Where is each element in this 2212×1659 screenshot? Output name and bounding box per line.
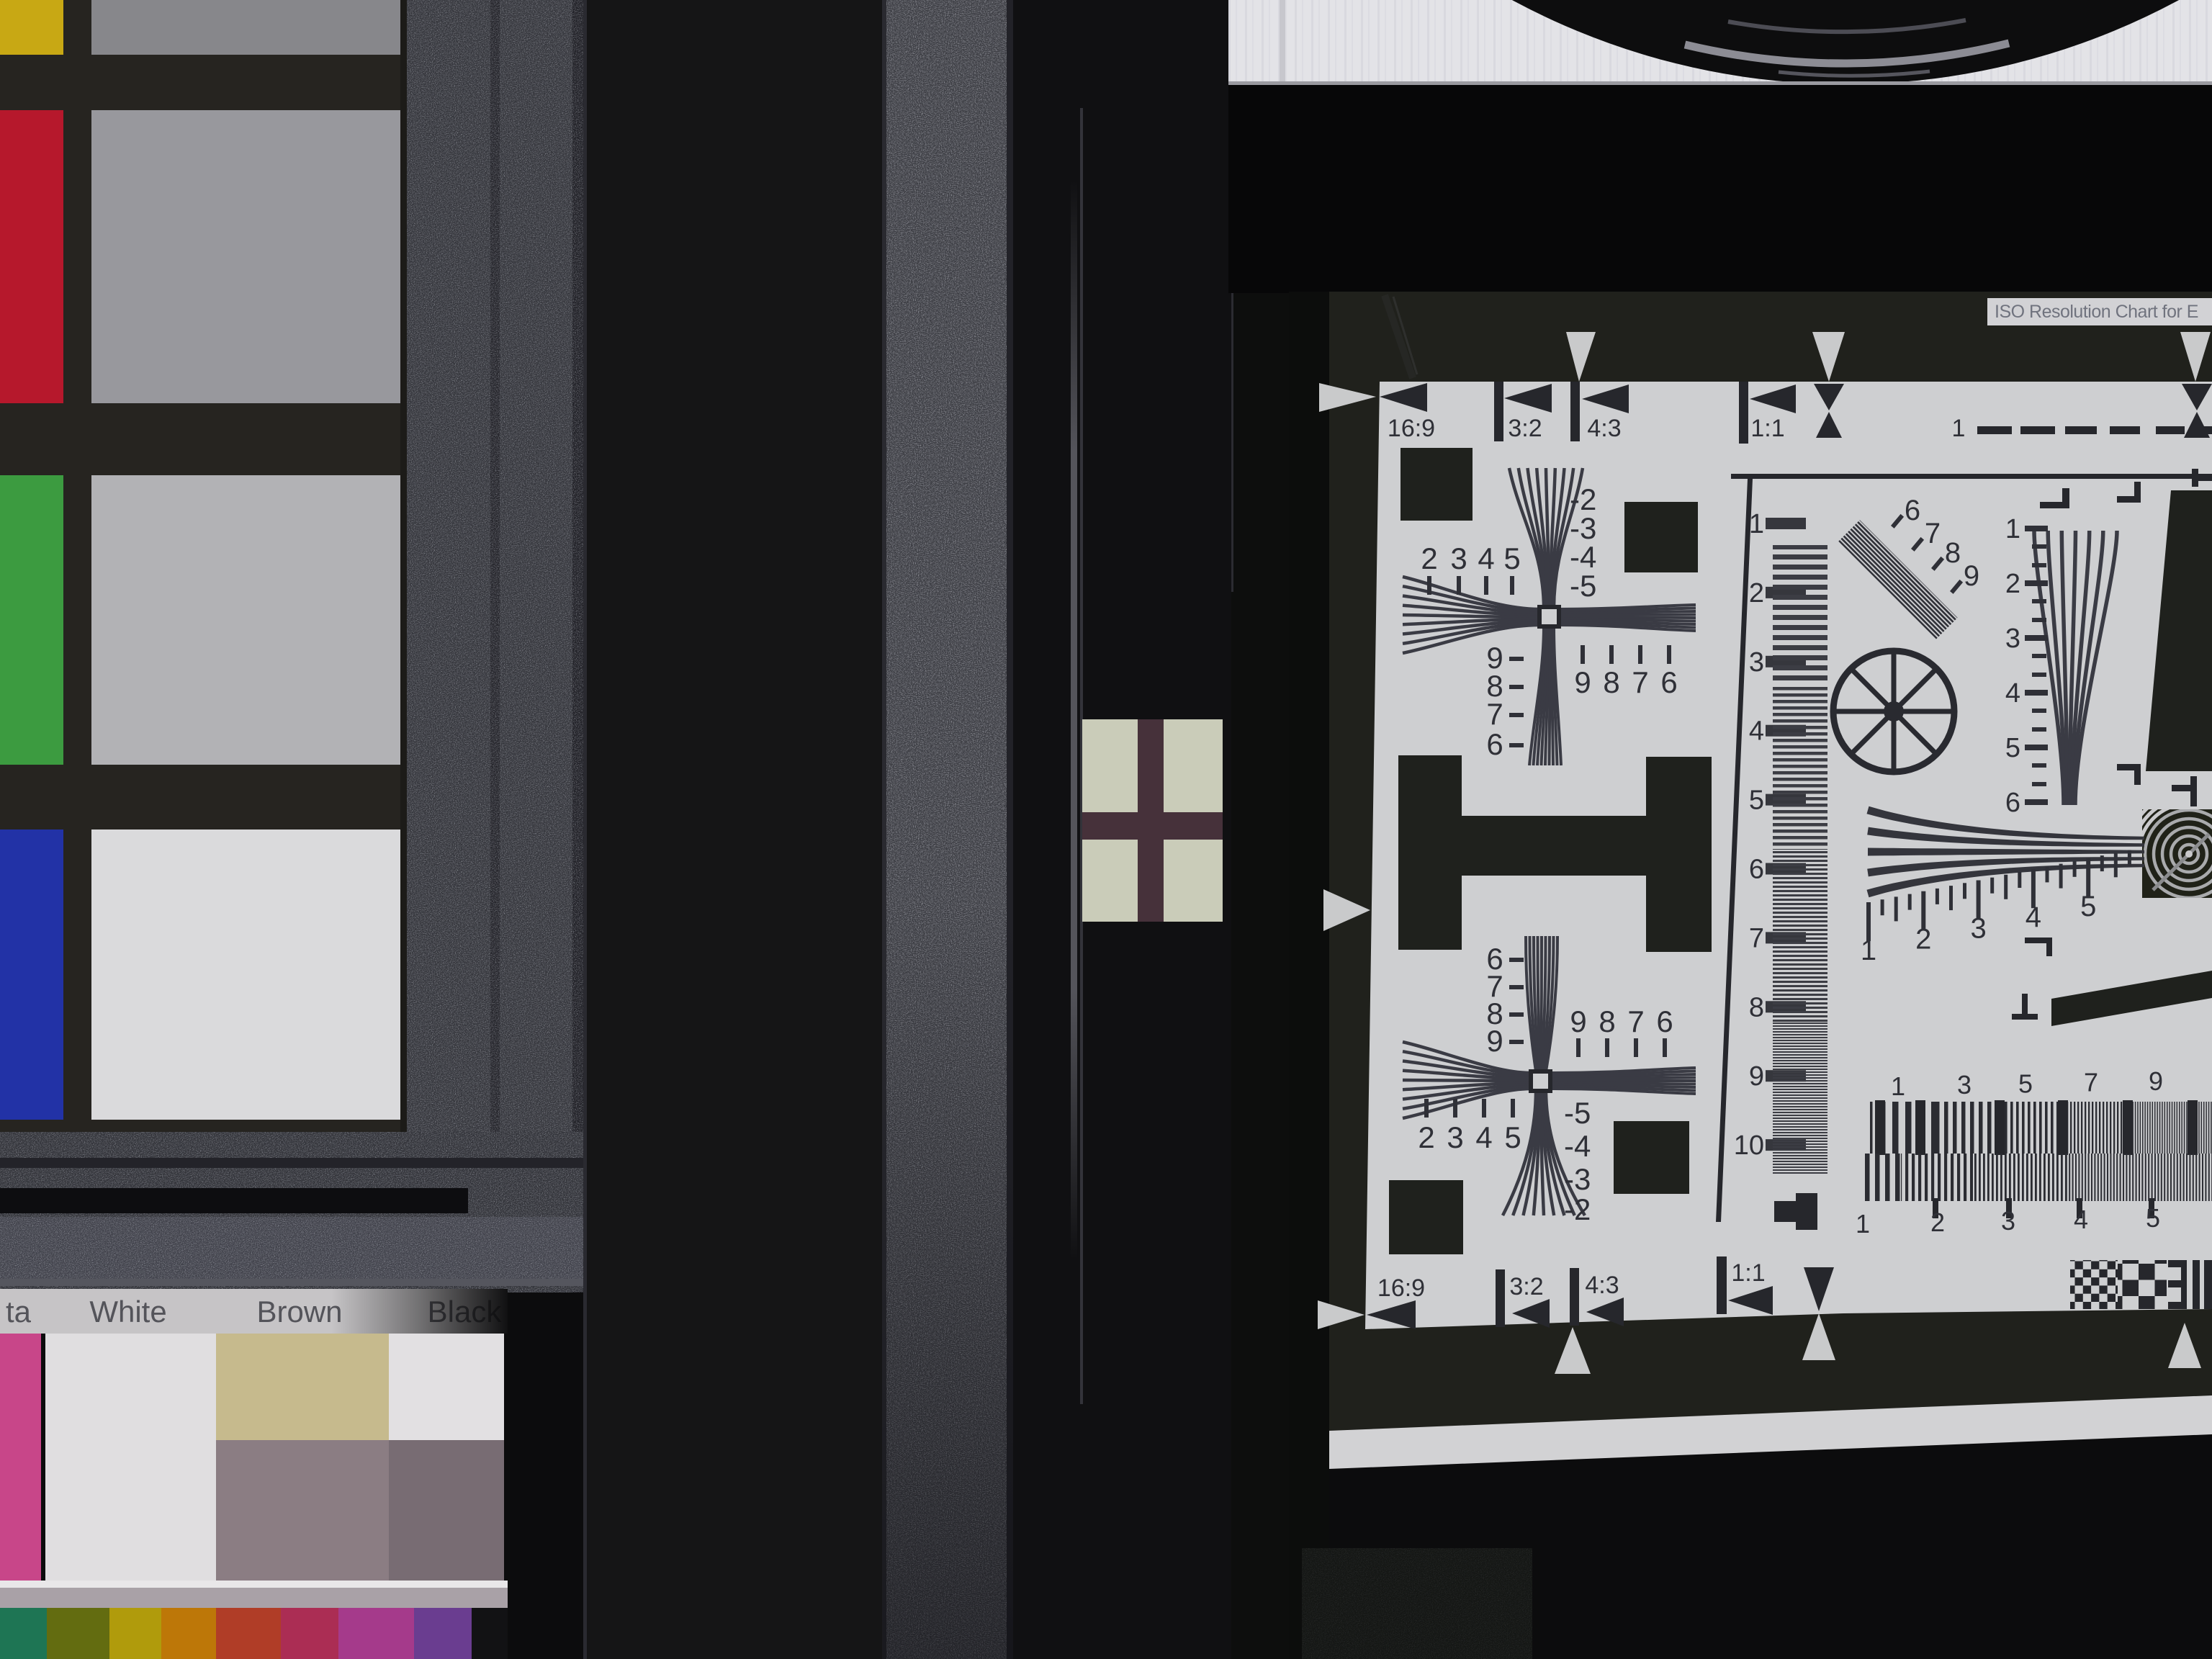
svg-text:9: 9 (2149, 1066, 2163, 1096)
svg-text:3: 3 (1957, 1070, 1972, 1100)
svg-text:6: 6 (1905, 495, 1920, 526)
svg-text:1: 1 (1861, 935, 1876, 966)
svg-text:7: 7 (1632, 665, 1648, 699)
svg-text:-3: -3 (1564, 1162, 1591, 1196)
svg-text:2: 2 (2005, 569, 2020, 599)
svg-text:-5: -5 (1564, 1096, 1591, 1130)
svg-text:3: 3 (1749, 647, 1764, 678)
svg-text:9: 9 (1486, 1024, 1503, 1058)
svg-text:4:3: 4:3 (1587, 415, 1621, 442)
svg-text:-4: -4 (1564, 1129, 1591, 1163)
svg-text:3: 3 (1450, 541, 1467, 575)
svg-text:ISO Resolution Chart for E: ISO Resolution Chart for E (1995, 302, 2198, 322)
svg-text:4: 4 (2026, 902, 2041, 933)
svg-text:6: 6 (2005, 788, 2020, 818)
svg-text:7: 7 (1486, 697, 1503, 731)
svg-text:8: 8 (1599, 1004, 1615, 1038)
svg-text:7: 7 (1627, 1004, 1644, 1038)
svg-text:9: 9 (1749, 1061, 1764, 1092)
svg-text:5: 5 (2018, 1069, 2033, 1099)
svg-text:3:2: 3:2 (1508, 415, 1542, 442)
svg-text:5: 5 (1503, 541, 1520, 575)
svg-text:1: 1 (2005, 514, 2020, 544)
svg-text:2: 2 (1418, 1120, 1434, 1154)
svg-text:10: 10 (1734, 1130, 1764, 1161)
svg-text:1: 1 (1952, 415, 1966, 442)
svg-text:4: 4 (2074, 1205, 2088, 1234)
svg-text:7: 7 (1749, 923, 1764, 953)
svg-text:7: 7 (1925, 518, 1941, 549)
svg-text:5: 5 (1504, 1120, 1521, 1154)
svg-text:4: 4 (1475, 1120, 1492, 1154)
svg-text:2: 2 (1749, 578, 1764, 608)
svg-text:ta: ta (6, 1295, 32, 1328)
svg-text:White: White (89, 1295, 166, 1328)
svg-text:-5: -5 (1570, 569, 1596, 603)
svg-text:6: 6 (1486, 727, 1503, 761)
svg-text:3: 3 (2001, 1206, 2015, 1236)
svg-text:6: 6 (1656, 1004, 1673, 1038)
svg-text:5: 5 (2005, 733, 2020, 763)
svg-text:16:9: 16:9 (1388, 415, 1435, 442)
svg-text:3:2: 3:2 (1509, 1273, 1543, 1300)
svg-text:9: 9 (1964, 560, 1979, 592)
svg-text:1: 1 (1891, 1071, 1905, 1101)
svg-text:3: 3 (1970, 913, 1986, 945)
svg-text:-2: -2 (1564, 1192, 1591, 1226)
svg-text:16:9: 16:9 (1377, 1274, 1425, 1302)
svg-text:9: 9 (1570, 1004, 1586, 1038)
svg-text:4: 4 (1478, 541, 1494, 575)
svg-text:1:1: 1:1 (1731, 1259, 1765, 1287)
svg-text:1:1: 1:1 (1750, 415, 1784, 442)
svg-text:4: 4 (1749, 716, 1764, 747)
svg-text:1: 1 (1749, 509, 1764, 539)
svg-text:5: 5 (1749, 786, 1764, 816)
svg-text:1: 1 (1856, 1209, 1870, 1238)
svg-text:4: 4 (2005, 678, 2020, 709)
svg-text:8: 8 (1749, 992, 1764, 1022)
svg-text:5: 5 (2146, 1203, 2160, 1233)
svg-text:Brown: Brown (256, 1295, 342, 1328)
svg-text:2: 2 (1930, 1208, 1945, 1237)
svg-text:4:3: 4:3 (1585, 1272, 1619, 1299)
svg-text:6: 6 (1749, 855, 1764, 885)
svg-text:9: 9 (1574, 665, 1591, 699)
svg-text:3: 3 (1447, 1120, 1463, 1154)
svg-text:2: 2 (1915, 924, 1931, 956)
svg-text:7: 7 (2084, 1068, 2098, 1097)
svg-text:3: 3 (2005, 624, 2020, 654)
svg-text:8: 8 (1603, 665, 1619, 699)
svg-text:2: 2 (1421, 541, 1437, 575)
svg-text:5: 5 (2080, 891, 2096, 922)
svg-text:6: 6 (1660, 665, 1677, 699)
svg-text:8: 8 (1945, 537, 1961, 569)
